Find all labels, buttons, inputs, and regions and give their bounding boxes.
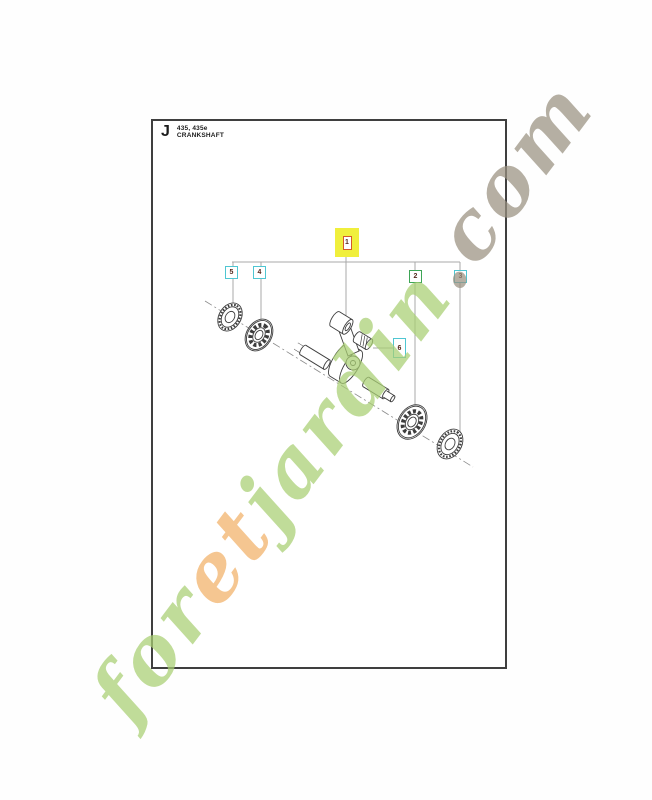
bearing-part-4: [239, 314, 278, 356]
crankshaft-exploded-diagram: [153, 121, 507, 667]
seal-part-3: [432, 424, 468, 463]
callout-4[interactable]: 4: [253, 266, 266, 279]
callout-6[interactable]: 6: [393, 338, 406, 358]
seal-part-5: [213, 298, 247, 335]
callout-3[interactable]: 3: [454, 270, 467, 283]
callout-5[interactable]: 5: [225, 266, 238, 279]
parts-diagram-sheet: J 435, 435e CRANKSHAFT: [151, 119, 507, 669]
callout-1-highlight[interactable]: 1: [335, 228, 359, 257]
crankshaft-part-1: [294, 310, 396, 402]
callout-2[interactable]: 2: [409, 270, 422, 283]
callout-1-box: 1: [343, 236, 352, 250]
